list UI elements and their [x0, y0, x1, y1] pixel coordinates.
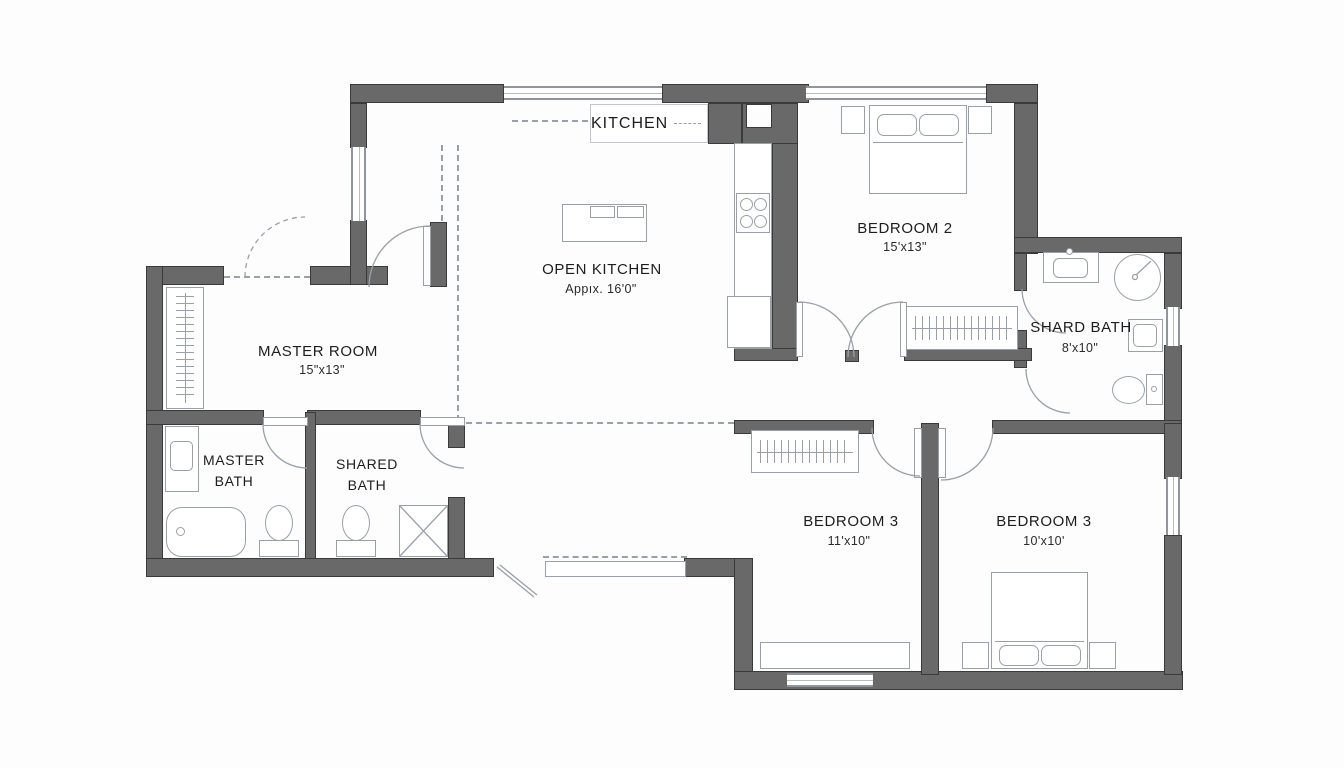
room-label-bedroom3-left: BEDROOM 3: [803, 513, 898, 530]
pillow: [999, 645, 1039, 666]
toilet-bowl: [1112, 376, 1145, 404]
wall-segment: [1014, 253, 1027, 291]
door-swing: [1026, 369, 1070, 413]
wall-segment: [305, 412, 316, 561]
nightstand: [841, 106, 865, 134]
wall-notch: [746, 104, 772, 128]
door-swing: [799, 302, 854, 357]
window: [351, 147, 366, 221]
dashed-line: [674, 123, 701, 124]
dashed-line: [512, 120, 588, 122]
wall-segment: [684, 558, 736, 577]
nightstand: [962, 642, 989, 669]
wall-segment: [350, 103, 367, 148]
closet-rail: [912, 328, 1012, 329]
sink-basin: [1133, 324, 1157, 347]
nightstand: [968, 106, 992, 134]
floor-plan: KITCHEN OPEN KITCHEN Appıx. 16'0" MASTER…: [0, 0, 1344, 768]
pillow: [877, 114, 917, 136]
wall-segment: [1164, 345, 1182, 423]
wall-segment: [307, 410, 421, 425]
bed-blanket-line: [873, 142, 963, 143]
door-swing: [941, 428, 993, 480]
wall-segment: [708, 103, 742, 144]
fridge: [727, 296, 771, 348]
door-leaf: [420, 417, 465, 426]
window: [1166, 307, 1180, 346]
room-label-open-kitchen: OPEN KITCHEN: [542, 261, 662, 278]
shower-stall: [399, 505, 448, 557]
wall-segment: [845, 350, 859, 362]
island-sink: [617, 206, 644, 218]
door-swing: [263, 424, 307, 468]
toilet-tank: [336, 540, 376, 557]
door-swing: [872, 428, 920, 476]
room-label-shared-bath: BATH: [348, 477, 387, 493]
door-swing-dashed: [245, 217, 305, 277]
window: [787, 673, 873, 687]
wall-segment: [986, 84, 1038, 103]
room-label-shard-bath: SHARD BATH: [1030, 319, 1132, 336]
entry-door-slab: [545, 561, 686, 577]
wall-segment: [1014, 103, 1038, 254]
wall-segment: [1164, 423, 1182, 479]
room-dims-bedroom3-left: 11'x10": [828, 534, 871, 548]
stove-burner: [754, 198, 767, 211]
wall-segment: [734, 348, 798, 361]
door-leaf: [914, 428, 922, 478]
stove-burner: [754, 215, 767, 228]
wall-segment: [430, 222, 447, 287]
wall-segment: [350, 84, 504, 103]
toilet-tank: [259, 540, 299, 557]
round-shower: [1114, 254, 1161, 301]
bed-blanket-line: [995, 641, 1084, 642]
room-dims-bedroom3-right: 10'x10': [1023, 534, 1065, 548]
wall-segment: [921, 423, 939, 675]
window: [806, 86, 986, 100]
entry-door-swing: [497, 565, 537, 597]
room-dims-master-room: 15"x13": [299, 363, 345, 377]
wall-segment: [992, 420, 1182, 434]
room-area-open-kitchen: Appıx. 16'0": [565, 282, 636, 296]
room-label-master-bath: MASTER: [203, 452, 265, 468]
sink-basin: [1053, 258, 1088, 278]
stove: [736, 193, 770, 233]
wall-segment: [1164, 253, 1182, 309]
closet: [906, 306, 1018, 350]
island-sink: [590, 206, 615, 218]
door-leaf: [796, 302, 803, 357]
sink-basin: [170, 441, 193, 471]
room-label-master-bath: BATH: [215, 473, 254, 489]
wall-segment: [146, 410, 264, 425]
window: [504, 86, 662, 100]
dashed-line: [466, 422, 734, 424]
room-label-master-room: MASTER ROOM: [258, 343, 378, 360]
faucet-dot: [1066, 248, 1073, 255]
wall-segment: [1014, 237, 1182, 253]
dashed-line: [543, 556, 687, 558]
wall-segment: [350, 220, 367, 285]
door-swing: [848, 302, 903, 357]
room-label-bedroom2: BEDROOM 2: [857, 220, 952, 237]
wall-segment: [1164, 535, 1182, 675]
stove-burner: [740, 198, 753, 211]
toilet-bowl: [265, 505, 293, 541]
closet: [166, 287, 204, 409]
nightstand: [1089, 642, 1116, 669]
room-dims-bedroom2: 15'x13": [883, 240, 927, 254]
double-bed: [869, 105, 967, 194]
kitchen-label: KITCHEN: [591, 115, 668, 133]
room-dims-shard-bath: 8'x10": [1062, 341, 1098, 355]
pillow: [1041, 645, 1081, 666]
door-leaf: [938, 428, 946, 478]
stove-burner: [740, 215, 753, 228]
closet-rail: [185, 293, 186, 403]
closet-rail: [757, 452, 853, 453]
wall-segment: [772, 143, 798, 354]
door-leaf: [423, 226, 431, 286]
tub-faucet: [176, 527, 185, 536]
dresser: [760, 642, 910, 669]
double-bed: [991, 572, 1088, 669]
window: [1166, 477, 1180, 535]
wall-segment: [146, 558, 494, 577]
wall-segment: [310, 266, 388, 285]
dashed-line: [224, 276, 310, 278]
room-label-shared-bath: SHARED: [336, 456, 398, 472]
wall-segment: [662, 84, 809, 103]
pillow: [919, 114, 959, 136]
flush-button: [1151, 386, 1157, 392]
door-leaf: [263, 417, 308, 426]
kitchen-label-box: KITCHEN: [590, 104, 708, 143]
closet: [751, 430, 859, 473]
door-leaf: [900, 302, 907, 357]
dashed-line: [457, 145, 459, 421]
room-label-bedroom3-right: BEDROOM 3: [996, 513, 1091, 530]
dashed-line: [441, 145, 443, 221]
toilet-bowl: [342, 505, 370, 541]
